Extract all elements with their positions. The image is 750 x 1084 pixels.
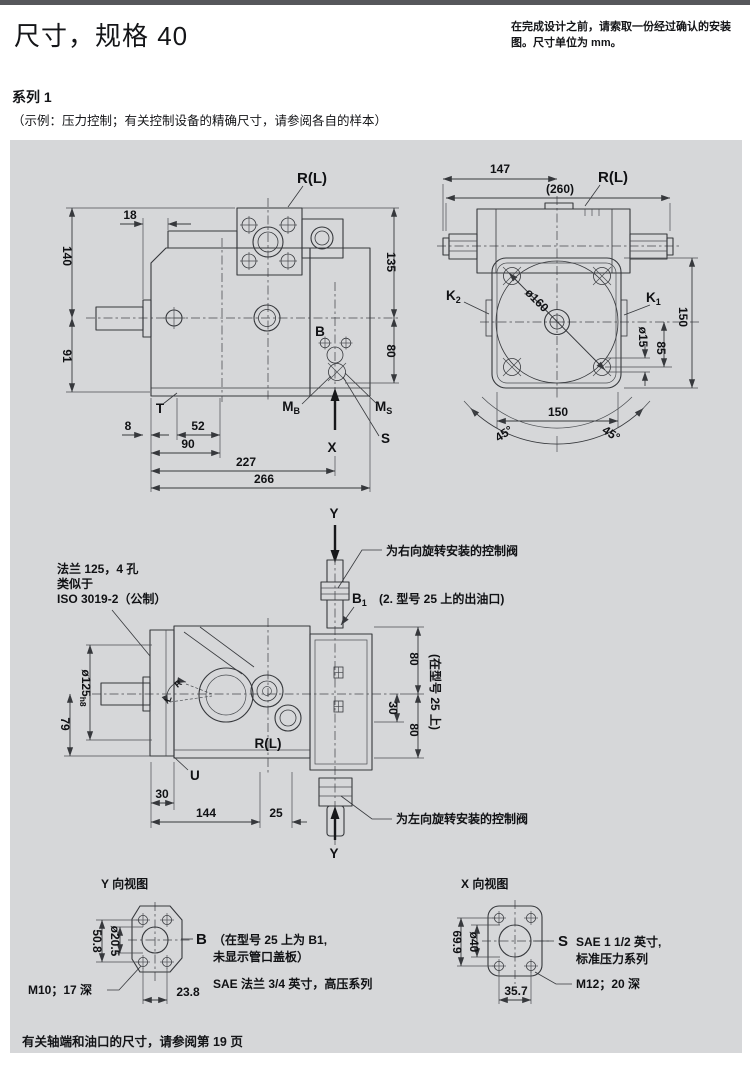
y-view-port-b-label: B — [196, 931, 207, 948]
x-view-port-note2: 标准压力系列 — [575, 951, 648, 966]
dim-spigot-125h8: ø125h8 — [78, 669, 93, 707]
rear-port-rl-label: R(L) — [598, 169, 628, 186]
dim-8: 8 — [125, 419, 132, 433]
dim-45-right: 45° — [600, 423, 623, 445]
technical-drawing: R(L) B T MB MS S X 18 140 — [0, 0, 750, 1084]
dim-45-left: 45° — [492, 423, 515, 445]
flange-note-line3: ISO 3019-2（公制） — [57, 591, 166, 606]
dim-52: 52 — [191, 419, 205, 433]
frame-size-note: (在型号 25 上) — [428, 654, 443, 730]
side-view-drawing: R(L) B T MB MS S X 18 140 — [60, 170, 399, 492]
flange-note-line2: 类似于 — [57, 576, 93, 591]
dim-266: 266 — [254, 472, 274, 486]
x-view-title: X 向视图 — [461, 876, 508, 891]
dim-80-side: 80 — [384, 344, 398, 358]
port-b1-label: B1 — [352, 591, 367, 608]
dim-35-7: 35.7 — [504, 984, 528, 998]
x-view-port-note1: SAE 1 1/2 英寸, — [576, 934, 661, 949]
top-port-rl-label: R(L) — [255, 736, 282, 751]
rear-view-drawing: ø160 R(L) K2 K1 147 (260) 150 ø15 — [437, 162, 700, 452]
dim-bolt-circle-160: ø160 — [522, 286, 551, 315]
side-port-mb-label: MB — [282, 399, 300, 416]
dim-25: 25 — [269, 806, 283, 820]
dim-147: 147 — [490, 162, 510, 176]
dim-30-right: 30 — [386, 701, 400, 715]
dim-150-side: 150 — [676, 307, 690, 327]
dim-227: 227 — [236, 455, 256, 469]
y-direction-label-top: Y — [329, 506, 338, 521]
right-rotation-note: 为右向旋转安装的控制阀 — [386, 543, 518, 558]
dim-23-8: 23.8 — [176, 985, 200, 999]
dim-hole-15: ø15 — [636, 327, 650, 348]
x-direction-label: X — [327, 440, 336, 455]
dim-90: 90 — [181, 437, 195, 451]
dim-80-bottom: 80 — [407, 723, 421, 737]
port-k2-label: K2 — [446, 288, 461, 305]
port-u-label: U — [190, 768, 200, 783]
dim-140: 140 — [60, 246, 74, 266]
dim-135: 135 — [384, 252, 398, 272]
x-view-drawing: X 向视图 69.9 ø40 35.7 S SAE 1 1/2 英寸, 标准压力… — [450, 876, 661, 1004]
dim-85: 85 — [654, 341, 668, 355]
side-port-s-label: S — [381, 431, 390, 446]
dim-20-5: ø20.5 — [108, 926, 122, 957]
port-k1-label: K1 — [646, 290, 661, 307]
y-view-sae-note: SAE 法兰 3/4 英寸，高压系列 — [213, 976, 372, 991]
dim-80-top: 80 — [407, 652, 421, 666]
top-view-drawing: Y 为右向旋转安装的控制阀 B1 (2. 型号 25 上的出油口) — [57, 506, 528, 861]
y-view-port-note2: 未显示管口盖板） — [212, 949, 309, 964]
dim-144: 144 — [196, 806, 216, 820]
y-view-drawing: Y 向视图 50.8 ø20.5 23.8 M10；17 深 B （在型号 25… — [28, 876, 372, 1004]
port-b1-note: (2. 型号 25 上的出油口) — [379, 591, 504, 606]
y-direction-label-bottom: Y — [329, 846, 338, 861]
y-view-port-note1: （在型号 25 上为 B1, — [213, 932, 327, 947]
dim-79: 79 — [58, 717, 72, 731]
y-view-title: Y 向视图 — [101, 876, 148, 891]
thread-note-m12: M12；20 深 — [576, 976, 640, 991]
datasheet-page: 尺寸，规格 40 在完成设计之前，请索取一份经过确认的安装图。尺寸单位为 mm。… — [0, 0, 750, 1084]
dim-69-9: 69.9 — [450, 930, 464, 954]
dim-50-8: 50.8 — [90, 929, 104, 953]
dim-18: 18 — [123, 208, 137, 222]
side-port-ms-label: MS — [375, 399, 392, 416]
dim-260: (260) — [546, 182, 574, 196]
thread-note-m10: M10；17 深 — [28, 982, 92, 997]
dim-91: 91 — [60, 349, 74, 363]
x-view-port-s-label: S — [558, 933, 568, 950]
left-rotation-note: 为左向旋转安装的控制阀 — [396, 811, 528, 826]
flange-note-line1: 法兰 125，4 孔 — [57, 561, 138, 576]
dim-30-left: 30 — [155, 787, 169, 801]
side-port-b-label: B — [315, 324, 325, 339]
side-port-rl-label: R(L) — [297, 170, 327, 187]
dim-40: ø40 — [467, 932, 481, 953]
rotation-l-label: L — [163, 694, 174, 703]
dim-150-bottom: 150 — [548, 405, 568, 419]
